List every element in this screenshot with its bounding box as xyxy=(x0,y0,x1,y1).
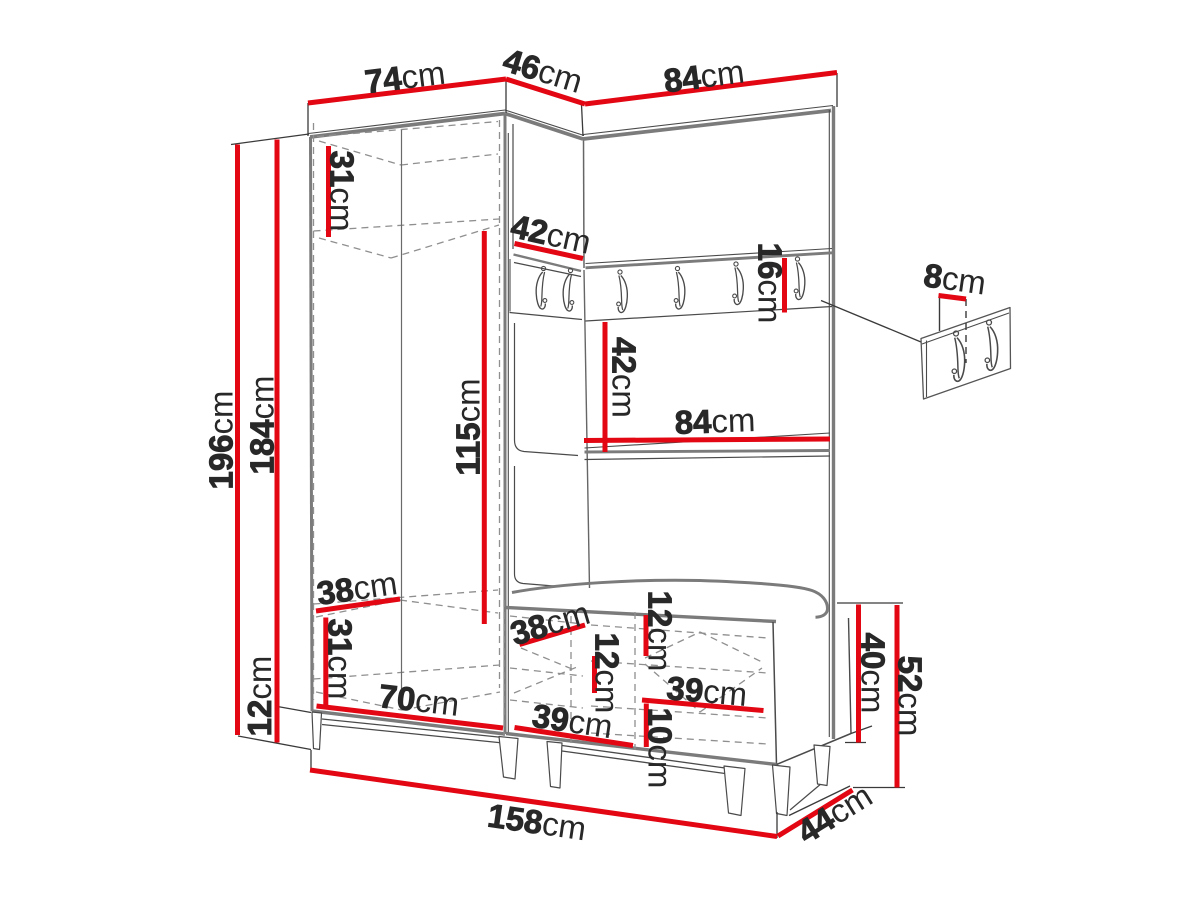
svg-text:12cm: 12cm xyxy=(642,591,679,672)
svg-text:84cm: 84cm xyxy=(662,53,747,100)
svg-text:8cm: 8cm xyxy=(922,256,989,301)
svg-text:74cm: 74cm xyxy=(363,54,448,101)
svg-text:42cm: 42cm xyxy=(508,207,595,261)
svg-text:196cm: 196cm xyxy=(203,390,240,489)
svg-text:184cm: 184cm xyxy=(244,375,281,474)
svg-text:38cm: 38cm xyxy=(314,564,399,612)
svg-text:84cm: 84cm xyxy=(674,401,756,441)
svg-text:12cm: 12cm xyxy=(241,656,278,737)
svg-text:31cm: 31cm xyxy=(324,151,361,232)
svg-text:40cm: 40cm xyxy=(855,633,892,714)
svg-text:12cm: 12cm xyxy=(589,633,626,714)
svg-text:42cm: 42cm xyxy=(606,337,643,418)
svg-text:39cm: 39cm xyxy=(665,669,749,713)
svg-text:158cm: 158cm xyxy=(485,797,588,848)
svg-text:44cm: 44cm xyxy=(790,776,878,850)
svg-text:10cm: 10cm xyxy=(642,708,679,789)
svg-text:16cm: 16cm xyxy=(752,243,789,324)
svg-text:31cm: 31cm xyxy=(322,619,359,700)
svg-text:52cm: 52cm xyxy=(892,656,929,737)
svg-text:115cm: 115cm xyxy=(450,378,487,475)
svg-text:38cm: 38cm xyxy=(506,594,594,652)
